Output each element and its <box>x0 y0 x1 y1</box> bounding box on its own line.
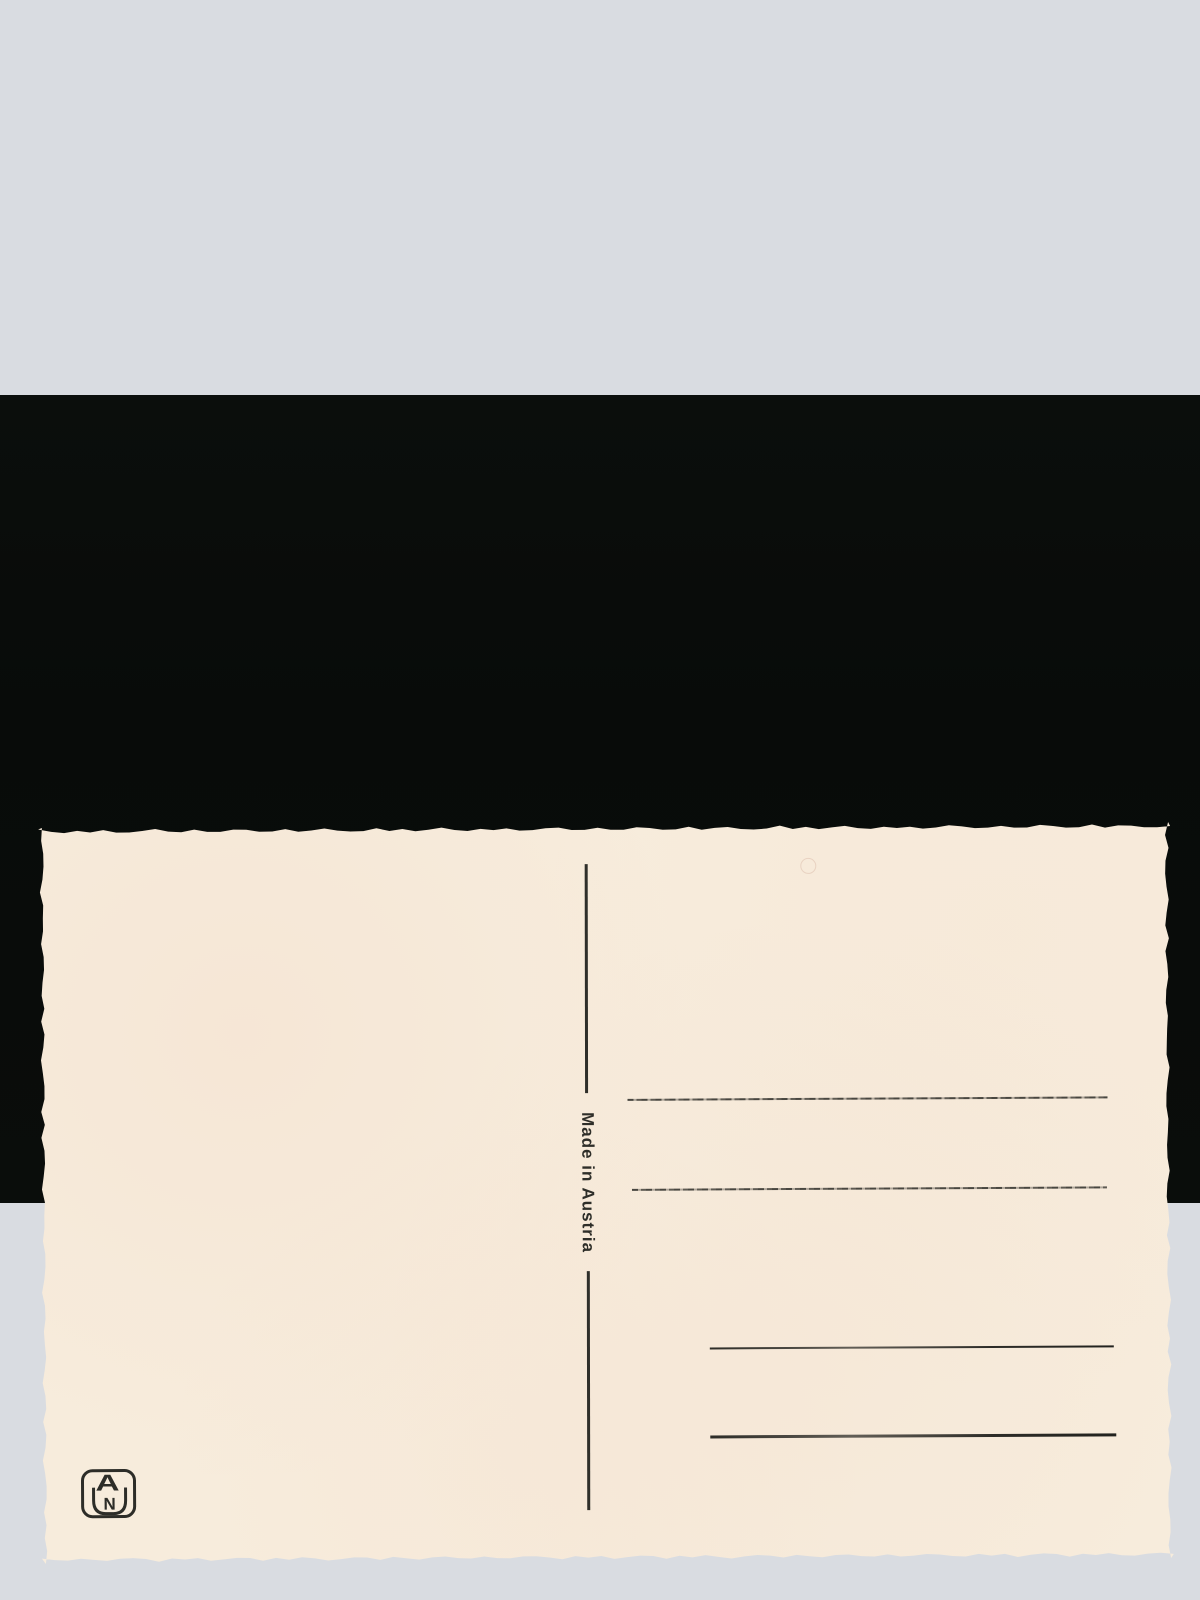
address-line-2 <box>632 1186 1107 1190</box>
paper-blemish-ring <box>800 858 816 874</box>
photo-background: Made in Austria A N <box>0 0 1200 1600</box>
address-line-4 <box>710 1433 1116 1438</box>
address-line-3 <box>710 1345 1114 1349</box>
black-mat: Made in Austria A N <box>0 395 1200 1203</box>
divider-line-bottom <box>587 1271 590 1510</box>
made-in-austria-label: Made in Austria <box>572 1093 602 1271</box>
publisher-monogram-logo: A N <box>78 1467 138 1520</box>
divider-line-top <box>585 864 588 1093</box>
monogram-letter-n: N <box>103 1495 115 1514</box>
postcard-back: Made in Austria A N <box>38 822 1174 1564</box>
monogram-letter-a: A <box>95 1470 119 1496</box>
address-line-1 <box>628 1096 1108 1101</box>
